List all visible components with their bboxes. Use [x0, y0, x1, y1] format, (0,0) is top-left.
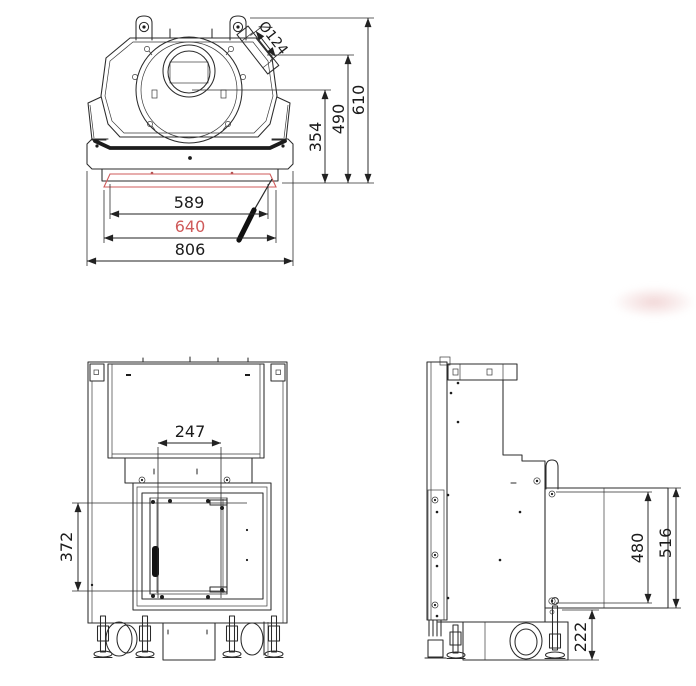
dim-base-height: 222 — [571, 622, 590, 653]
dim-glass-height: 480 — [628, 533, 647, 564]
dim-mid-depth: 490 — [329, 104, 348, 135]
technical-drawing: Ø124 589 640 806 354 — [0, 0, 696, 686]
dim-frame-height: 516 — [656, 528, 675, 559]
dim-opening-height: 372 — [57, 532, 76, 563]
dim-inner-width: 589 — [174, 193, 205, 212]
dim-glass-width: 640 — [175, 217, 206, 236]
front-view: 247 372 — [57, 357, 287, 660]
dim-overall-depth: 610 — [349, 85, 368, 116]
technical-drawing-canvas: Ø124 589 640 806 354 — [0, 0, 696, 686]
top-view: Ø124 589 640 806 354 — [87, 14, 374, 266]
dim-overall-width: 806 — [175, 240, 206, 259]
dim-flue-center-depth: 354 — [306, 122, 325, 153]
side-view: 480 516 222 — [425, 357, 681, 660]
dim-opening-width: 247 — [175, 422, 206, 441]
